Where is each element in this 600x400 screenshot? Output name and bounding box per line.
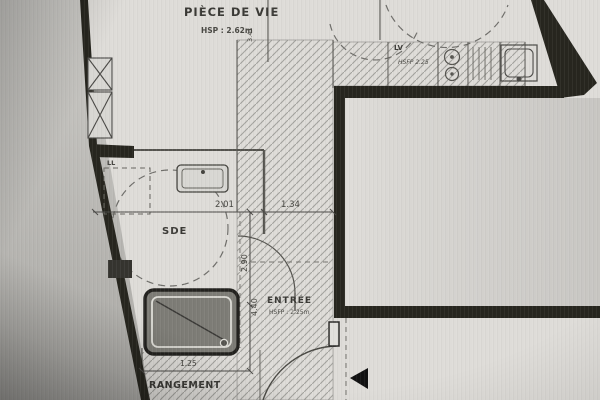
room-label-living: PIÈCE DE VIE	[184, 4, 279, 19]
label-laundry: LL	[107, 159, 115, 167]
dim-living-width: 3.41	[246, 28, 254, 42]
outside-area-right	[346, 98, 600, 306]
room-label-bathroom: SDE	[162, 226, 187, 237]
shower-tray-icon	[145, 290, 238, 354]
label-dishwasher: LV	[394, 44, 403, 52]
room-label-entry: ENTRÉE	[267, 294, 312, 306]
room-label-storage: RANGEMENT	[149, 380, 221, 391]
washbasin-icon	[177, 165, 228, 192]
duct-boxes	[88, 58, 112, 138]
wall-kitchen-south	[334, 86, 564, 98]
floor-plan-photo: PIÈCE DE VIE HSP : 2.62m 3.41 LV HSFP 2.…	[0, 0, 600, 400]
dim-hall-length: 4.40	[250, 298, 259, 316]
wall-corridor-east	[334, 88, 345, 318]
dim-bathroom-width: 2.01	[215, 200, 234, 210]
hatched-zone-kitchen	[333, 42, 525, 86]
ceiling-note-entry: HSFP : 2.25m	[269, 309, 310, 316]
dim-hall-width: 1.34	[281, 200, 300, 210]
hatched-zone-corridor	[237, 40, 333, 400]
wall-south-east	[334, 306, 600, 318]
ceiling-note-kitchen: HSFP 2.25	[398, 59, 429, 66]
wall-stub-bathroom	[90, 144, 134, 158]
dim-storage-width: 1.25	[180, 359, 197, 368]
door-leaf-entrance	[329, 322, 339, 346]
duct-box-shower	[108, 260, 132, 278]
floor-plan: PIÈCE DE VIE HSP : 2.62m 3.41 LV HSFP 2.…	[0, 0, 600, 400]
dim-bathroom-length: 2.90	[240, 254, 249, 272]
